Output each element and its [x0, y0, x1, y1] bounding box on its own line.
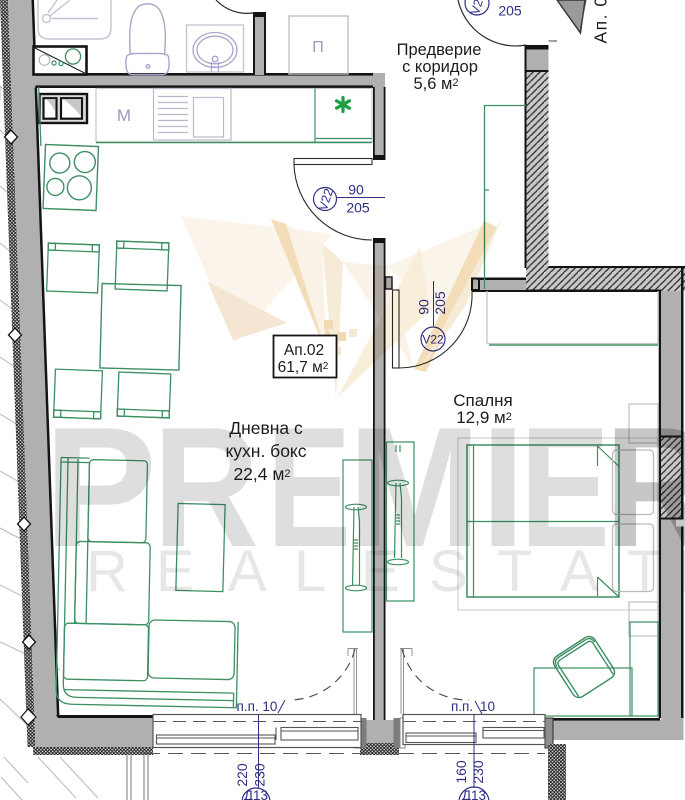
svg-text:Д13: Д13 — [462, 788, 486, 800]
svg-text:5,6 м2: 5,6 м2 — [414, 75, 459, 93]
svg-text:160: 160 — [453, 760, 469, 784]
svg-text:10: 10 — [480, 699, 495, 714]
svg-text:230: 230 — [470, 760, 486, 784]
svg-text:S: S — [429, 539, 468, 604]
svg-text:П: П — [312, 39, 324, 56]
svg-text:Ап. 01: Ап. 01 — [591, 0, 611, 44]
svg-text:кухн. бокс: кухн. бокс — [225, 441, 306, 461]
svg-text:п.п. 10: п.п. 10 — [237, 699, 278, 714]
svg-text:12,9 м2: 12,9 м2 — [456, 408, 512, 427]
svg-text:T: T — [627, 539, 662, 604]
svg-text:E: E — [361, 539, 400, 604]
svg-text:R: R — [86, 539, 128, 604]
svg-text:220: 220 — [234, 763, 250, 787]
svg-text:с коридор: с коридор — [402, 58, 478, 76]
svg-text:T: T — [497, 539, 532, 604]
svg-text:L: L — [294, 539, 326, 604]
svg-text:A: A — [228, 539, 267, 604]
svg-text:90: 90 — [348, 182, 364, 198]
svg-text:Ап.02: Ап.02 — [284, 342, 324, 359]
svg-text:Предверие: Предверие — [397, 41, 482, 59]
svg-text:п.п.: п.п. — [451, 699, 473, 714]
svg-text:Д13: Д13 — [244, 788, 268, 800]
svg-text:E: E — [156, 539, 195, 604]
svg-text:Дневна с: Дневна с — [229, 418, 303, 438]
svg-text:22,4 м2: 22,4 м2 — [233, 464, 290, 484]
svg-text:205: 205 — [346, 200, 370, 216]
svg-text:E: E — [679, 539, 685, 604]
svg-text:A: A — [560, 539, 599, 604]
svg-text:205: 205 — [498, 3, 522, 19]
svg-text:230: 230 — [252, 763, 268, 787]
svg-text:61,7 м2: 61,7 м2 — [278, 359, 329, 376]
svg-text:М: М — [117, 106, 131, 125]
